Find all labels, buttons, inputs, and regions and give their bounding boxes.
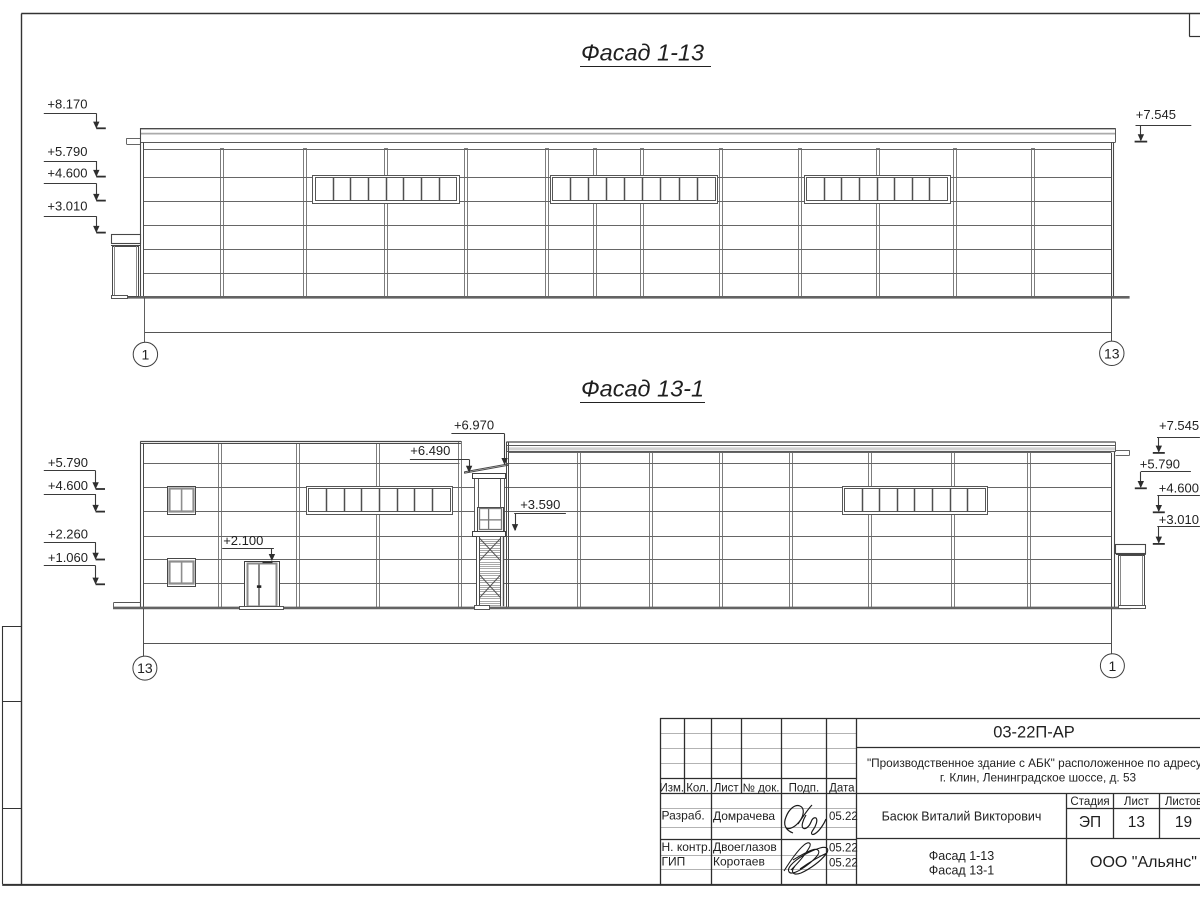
svg-text:+3.010: +3.010 bbox=[1159, 512, 1199, 527]
svg-text:Кол.: Кол. bbox=[686, 782, 709, 794]
svg-text:+2.100: +2.100 bbox=[223, 533, 263, 548]
svg-text:ГИП: ГИП bbox=[662, 855, 686, 869]
svg-text:Басюк Виталий Викторович: Басюк Виталий Викторович bbox=[882, 809, 1042, 823]
svg-text:Лист: Лист bbox=[1124, 796, 1150, 808]
svg-text:05.22: 05.22 bbox=[829, 811, 858, 823]
svg-text:Домрачева: Домрачева bbox=[713, 809, 775, 823]
svg-text:+4.600: +4.600 bbox=[1159, 481, 1199, 496]
svg-text:05.22: 05.22 bbox=[829, 843, 858, 855]
svg-text:Дата: Дата bbox=[829, 782, 855, 794]
svg-text:Листов: Листов bbox=[1165, 796, 1200, 808]
svg-text:+4.600: +4.600 bbox=[48, 478, 88, 493]
svg-text:+4.600: +4.600 bbox=[47, 165, 87, 180]
svg-text:Подп.: Подп. bbox=[789, 782, 820, 794]
svg-text:Лист: Лист bbox=[714, 782, 740, 794]
svg-text:Разраб.: Разраб. bbox=[662, 809, 705, 823]
svg-text:Двоеглазов: Двоеглазов bbox=[713, 840, 777, 854]
svg-text:+7.545: +7.545 bbox=[1136, 107, 1176, 122]
svg-text:+7.545: +7.545 bbox=[1159, 418, 1199, 433]
svg-text:13: 13 bbox=[137, 660, 153, 676]
svg-text:+1.060: +1.060 bbox=[48, 550, 88, 565]
svg-text:19: 19 bbox=[1175, 814, 1192, 831]
svg-text:+2.260: +2.260 bbox=[48, 527, 88, 542]
svg-text:05.22: 05.22 bbox=[829, 858, 858, 870]
svg-text:1: 1 bbox=[1109, 658, 1117, 674]
svg-text:+5.790: +5.790 bbox=[1140, 456, 1180, 471]
svg-text:Фасад 1-13: Фасад 1-13 bbox=[581, 40, 704, 66]
svg-text:03-22П-АР: 03-22П-АР bbox=[993, 724, 1075, 742]
svg-text:+3.590: +3.590 bbox=[520, 497, 560, 512]
svg-text:1: 1 bbox=[142, 346, 150, 362]
svg-text:г. Клин, Ленинградское шоссе,: г. Клин, Ленинградское шоссе, д. 53 bbox=[940, 770, 1137, 784]
svg-text:+6.490: +6.490 bbox=[410, 443, 450, 458]
svg-text:Коротаев: Коротаев bbox=[713, 855, 765, 869]
svg-text:+6.970: +6.970 bbox=[454, 417, 494, 432]
svg-text:Фасад 13-1: Фасад 13-1 bbox=[929, 863, 994, 877]
svg-text:Стадия: Стадия bbox=[1070, 796, 1109, 808]
svg-text:ООО "Альянс": ООО "Альянс" bbox=[1090, 854, 1197, 871]
svg-text:13: 13 bbox=[1104, 345, 1120, 361]
svg-text:Н. контр.: Н. контр. bbox=[662, 840, 712, 854]
svg-text:№ док.: № док. bbox=[743, 782, 780, 794]
svg-text:Фасад 1-13: Фасад 1-13 bbox=[929, 849, 994, 863]
svg-text:+3.010: +3.010 bbox=[47, 199, 87, 214]
svg-text:"Производственное здание с АБК: "Производственное здание с АБК" располож… bbox=[867, 756, 1200, 770]
svg-text:+5.790: +5.790 bbox=[47, 144, 87, 159]
svg-text:Изм.: Изм. bbox=[659, 782, 684, 794]
svg-text:Фасад 13-1: Фасад 13-1 bbox=[581, 376, 704, 402]
svg-text:+5.790: +5.790 bbox=[48, 455, 88, 470]
svg-text:+8.170: +8.170 bbox=[47, 96, 87, 111]
svg-text:13: 13 bbox=[1128, 814, 1145, 831]
svg-text:ЭП: ЭП bbox=[1079, 814, 1101, 831]
